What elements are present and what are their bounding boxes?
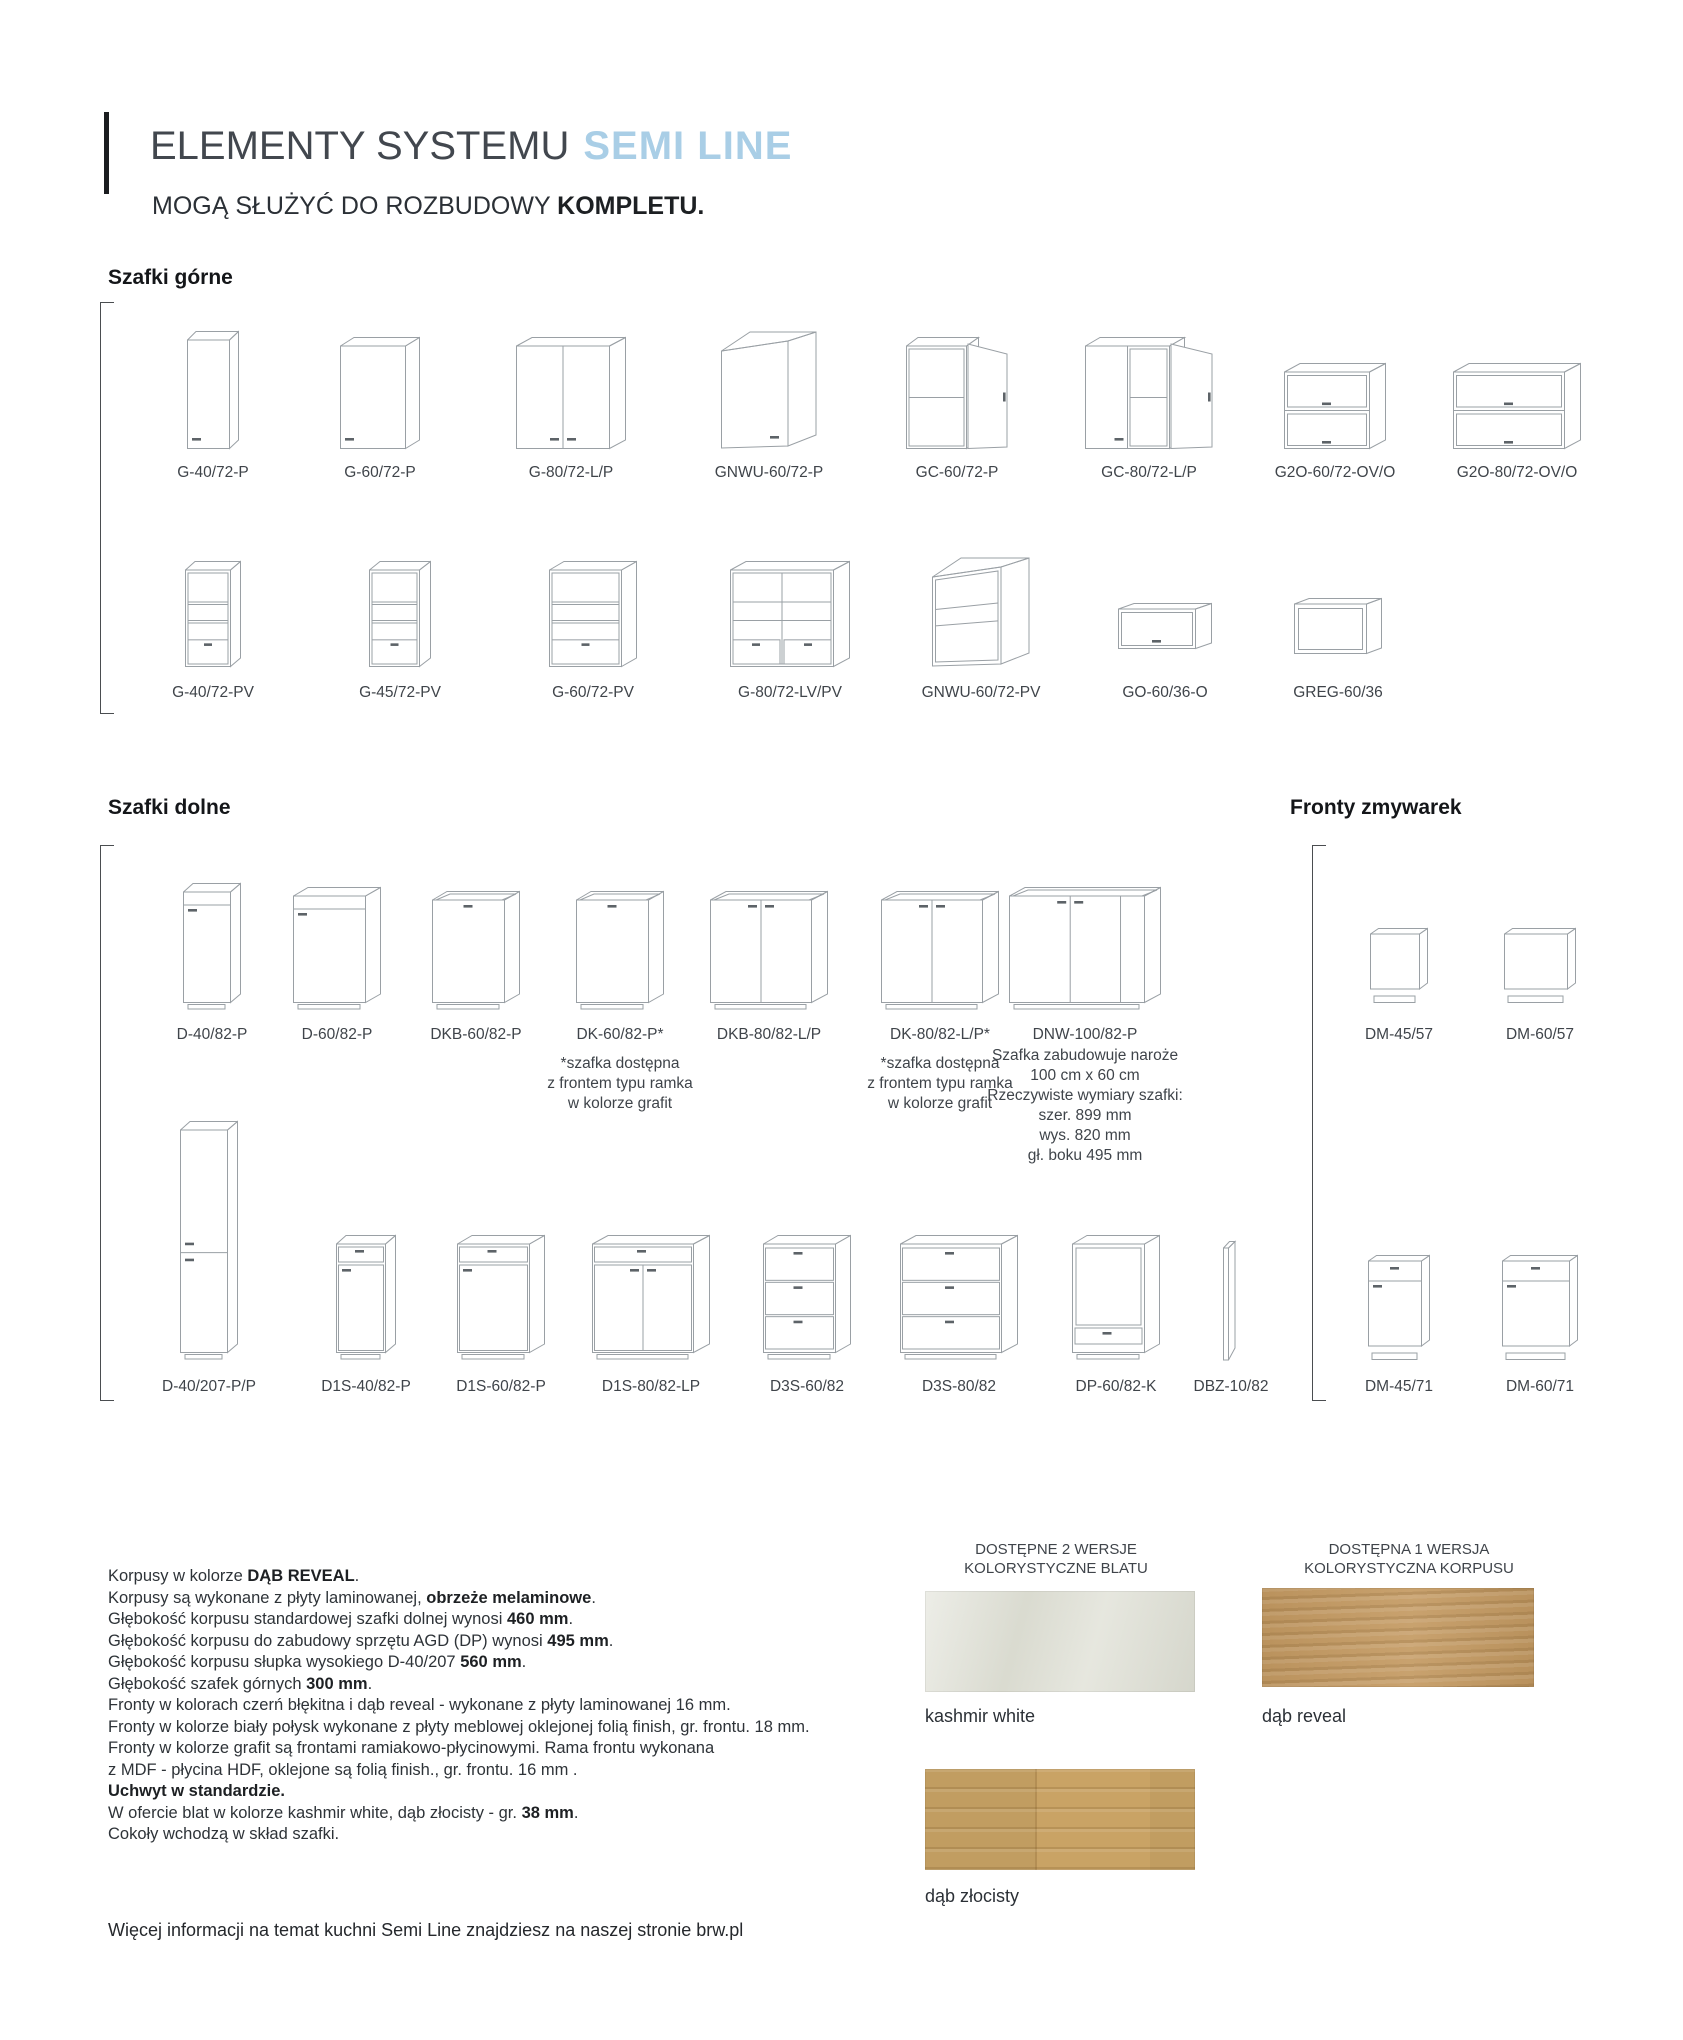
catalog-item: G-40/72-P [121,332,305,482]
catalog-item: GO-60/36-O [1073,604,1257,702]
cabinet-label: G-45/72-PV [308,684,492,702]
cabinet-label: G-60/72-P [288,464,472,482]
catalog-item: DBZ-10/82 [1139,1242,1323,1396]
footer-note: Więcej informacji na temat kuchni Semi L… [108,1920,743,1941]
spec-line: Fronty w kolorze grafit są frontami rami… [108,1738,810,1760]
spec-line: Fronty w kolorach czerń błękitna i dąb r… [108,1695,810,1717]
cabinet-label: GC-80/72-L/P [1057,464,1241,482]
upper-cabinet-open-door-icon [865,338,1049,450]
cabinet-label: GO-60/36-O [1073,684,1257,702]
catalog-item: GC-80/72-L/P [1057,338,1241,482]
spec-line: Uchwyt w standardzie. [108,1781,810,1803]
catalog-item: GNWU-60/72-P [677,332,861,482]
upper-cabinet-open-shelves-wide-icon [698,562,882,668]
carcass-finish-heading: DOSTĘPNA 1 WERSJA KOLORYSTYCZNA KORPUSU [1259,1540,1559,1578]
cabinet-label: GNWU-60/72-P [677,464,861,482]
catalog-item: DM-60/57 [1448,929,1632,1044]
upper-cabinet-flip-door-icon [1073,604,1257,650]
catalog-item: GC-60/72-P [865,338,1049,482]
cabinet-label: DKB-80/82-L/P [677,1026,861,1044]
upper-cabinet-open-box-icon [1246,599,1430,655]
cabinet-label: GNWU-60/72-PV [889,684,1073,702]
worktop-finishes-heading: DOSTĘPNE 2 WERSJE KOLORYSTYCZNE BLATU [906,1540,1206,1578]
swatch-label-dab-zlocisty: dąb złocisty [925,1886,1019,1907]
cabinet-label: DM-60/71 [1448,1378,1632,1396]
spec-line: Korpusy w kolorze DĄB REVEAL. [108,1566,810,1588]
cabinet-label: DNW-100/82-P [950,1026,1220,1044]
cabinet-label: G-80/72-L/P [479,464,663,482]
swatch-kashmir-white [925,1591,1195,1692]
asterisk-note: *szafka dostępnaz frontem typu ramkaw ko… [520,1054,720,1114]
catalog-item: G2O-60/72-OV/O [1243,364,1427,482]
catalog-item: G2O-80/72-OV/O [1425,364,1609,482]
catalog-item: G-60/72-PV [501,562,685,702]
swatch-label-dab-reveal: dąb reveal [1262,1706,1346,1727]
upper-cabinet-corner-open-icon [889,558,1073,668]
swatch-label-kashmir-white: kashmir white [925,1706,1035,1727]
cabinet-label: G-40/72-P [121,464,305,482]
catalog-item: DKB-80/82-L/P [677,892,861,1044]
spec-line: Głębokość korpusu standardowej szafki do… [108,1609,810,1631]
spec-line: Cokoły wchodzą w skład szafki. [108,1824,810,1846]
cabinet-label: G2O-80/72-OV/O [1425,464,1609,482]
dishwasher-panel-drawer-icon [1448,1256,1632,1362]
cabinet-label: G2O-60/72-OV/O [1243,464,1427,482]
base-cabinet-corner-icon [950,888,1220,1012]
upper-cabinet-double-door-icon [479,338,663,450]
upper-cabinet-single-door-icon [288,338,472,450]
worktop-heading-line1: DOSTĘPNE 2 WERSJE [906,1540,1206,1559]
spec-line: Korpusy są wykonane z płyty laminowanej,… [108,1588,810,1610]
catalog-item: G-60/72-P [288,338,472,482]
spec-line: z MDF - płycina HDF, oklejone są folią f… [108,1760,810,1782]
worktop-heading-line2: KOLORYSTYCZNE BLATU [906,1559,1206,1578]
carcass-heading-line2: KOLORYSTYCZNA KORPUSU [1259,1559,1559,1578]
upper-cabinet-open-shelves-icon [308,562,492,668]
catalog-item: DM-60/71 [1448,1256,1632,1396]
corner-cabinet-description: Szafka zabudowuje naroże100 cm x 60 cmRz… [950,1046,1220,1166]
cabinet-label: G-40/72-PV [121,684,305,702]
spec-line: Głębokość korpusu słupka wysokiego D-40/… [108,1652,810,1674]
specs-text: Korpusy w kolorze DĄB REVEAL.Korpusy są … [108,1566,810,1846]
cabinet-label: G-80/72-LV/PV [698,684,882,702]
upper-cabinet-open-shelves-icon [121,562,305,668]
cabinet-label: DM-60/57 [1448,1026,1632,1044]
cabinet-label: G-60/72-PV [501,684,685,702]
catalog-item: G-45/72-PV [308,562,492,702]
catalog-item: G-80/72-L/P [479,338,663,482]
spec-line: Fronty w kolorze biały połysk wykonane z… [108,1717,810,1739]
cabinet-label: GC-60/72-P [865,464,1049,482]
catalog-item: G-80/72-LV/PV [698,562,882,702]
cabinet-label: GREG-60/36 [1246,684,1430,702]
swatch-dab-zlocisty [925,1769,1195,1870]
swatch-dab-reveal [1262,1588,1534,1687]
spec-line: W ofercie blat w kolorze kashmir white, … [108,1803,810,1825]
catalog-item: DNW-100/82-PSzafka zabudowuje naroże100 … [950,888,1220,1166]
base-cabinet-sink-double-icon [677,892,861,1012]
filler-strip-icon [1139,1242,1323,1362]
dishwasher-panel-icon [1448,929,1632,1005]
upper-cabinet-open-shelves-icon [501,562,685,668]
upper-cabinet-corner-icon [677,332,861,450]
carcass-heading-line1: DOSTĘPNA 1 WERSJA [1259,1540,1559,1559]
upper-cabinet-single-door-icon [121,332,305,450]
spec-line: Głębokość korpusu do zabudowy sprzętu AG… [108,1631,810,1653]
upper-cabinet-flip-double-icon [1425,364,1609,450]
cabinet-label: DBZ-10/82 [1139,1378,1323,1396]
catalog-item: GNWU-60/72-PV [889,558,1073,702]
catalog-item: G-40/72-PV [121,562,305,702]
spec-line: Głębokość szafek górnych 300 mm. [108,1674,810,1696]
upper-cabinet-flip-double-icon [1243,364,1427,450]
upper-cabinet-double-open-door-icon [1057,338,1241,450]
catalog-item: GREG-60/36 [1246,599,1430,702]
